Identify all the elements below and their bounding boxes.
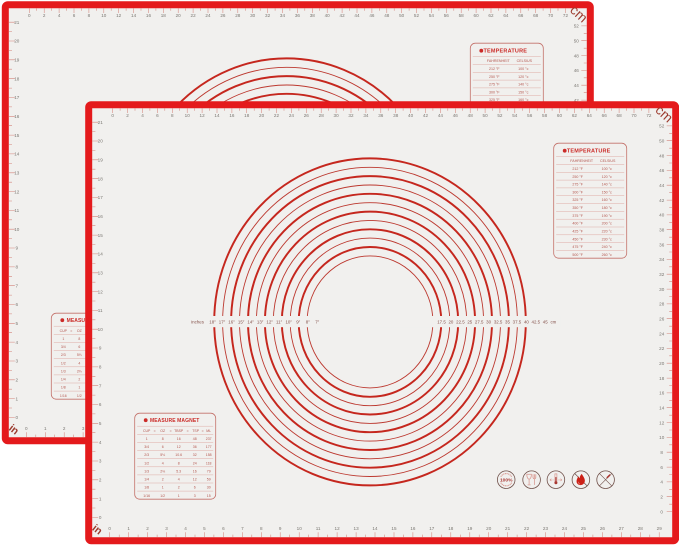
svg-text:FAHRENHEIT: FAHRENHEIT bbox=[487, 59, 511, 63]
svg-text:FAHRENHEIT: FAHRENHEIT bbox=[570, 159, 594, 163]
svg-text:TEMPERATURE: TEMPERATURE bbox=[483, 49, 527, 55]
svg-text:CUP=OZ=TBSP=TSP=ML: CUP=OZ=TBSP=TSP=ML bbox=[143, 429, 211, 433]
svg-text:CELSIUS: CELSIUS bbox=[600, 159, 616, 163]
svg-text:100%: 100% bbox=[500, 478, 513, 484]
svg-text:MEASURE MAGNET: MEASURE MAGNET bbox=[150, 418, 199, 424]
svg-text:CELSIUS: CELSIUS bbox=[517, 59, 533, 63]
svg-text:TEMPERATURE: TEMPERATURE bbox=[567, 149, 611, 155]
svg-text:17.52022.52527.53032.53537.540: 17.52022.52527.53032.53537.54042.545cm bbox=[437, 320, 556, 325]
